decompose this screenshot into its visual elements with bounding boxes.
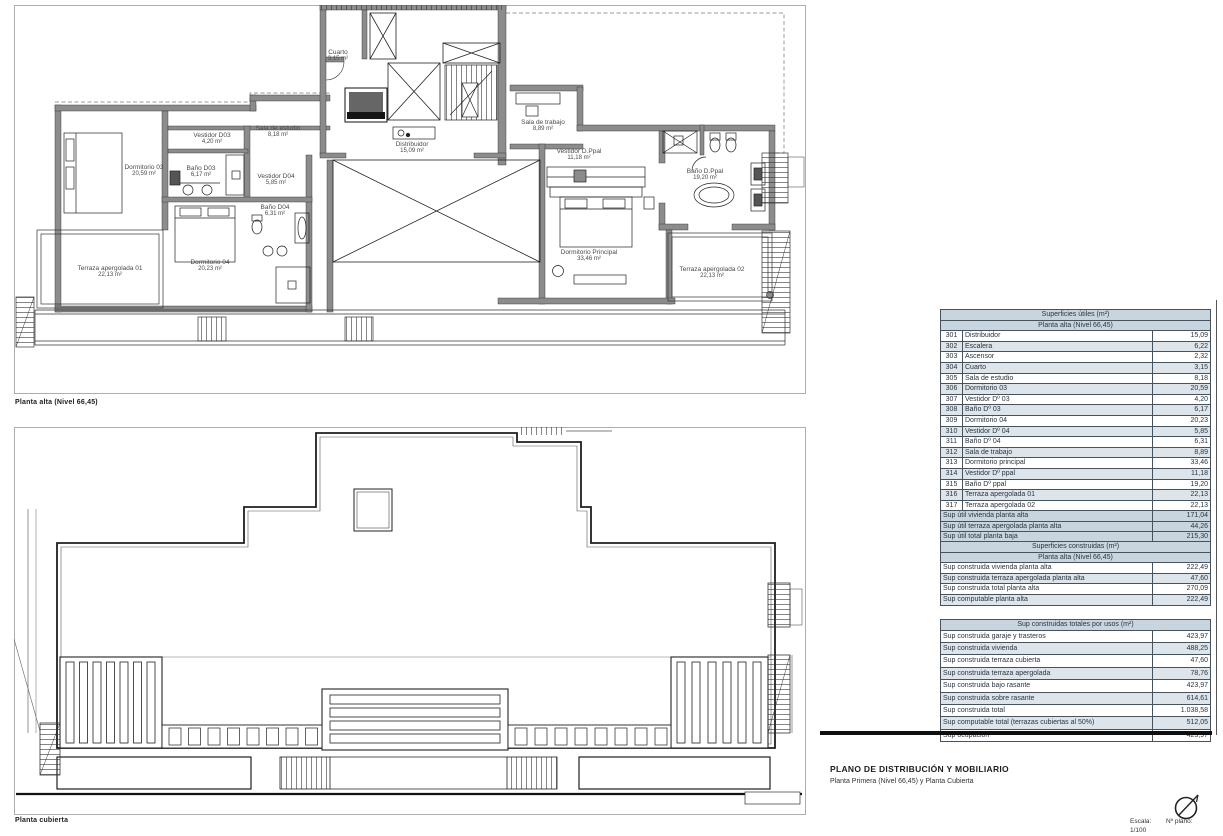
table-row: 312Sala de trabajo8,89	[941, 447, 1211, 458]
table-row: 306Dormitorio 0320,59	[941, 384, 1211, 395]
useful-areas-table: Superficies útiles (m²) Planta alta (Niv…	[940, 309, 1211, 543]
tower-top-hatch	[320, 5, 506, 10]
table-row: Sup construida terraza cubierta47,60	[941, 655, 1211, 667]
total-areas-rows: Sup construida garaje y trasteros423,97S…	[941, 630, 1211, 742]
skylight	[354, 489, 392, 531]
table-row: Sup construida total planta alta270,09	[941, 584, 1211, 595]
total-areas-table: Sup construidas totales por usos (m²) Su…	[940, 619, 1211, 742]
table-row: 313Dormitorio principal33,46	[941, 458, 1211, 469]
drawing-sheet: { "document": { "title": "PLANO DE DISTR…	[0, 0, 1223, 836]
bed-dormitorio-03	[64, 133, 122, 213]
table-row: 302Escalera6,22	[941, 341, 1211, 352]
master-closet	[547, 167, 645, 187]
table-row: Sup construida vivienda planta alta222,4…	[941, 563, 1211, 574]
table-row: Sup computable planta alta222,49	[941, 594, 1211, 605]
master-bath-fixtures	[663, 131, 765, 211]
built-areas-rows: Sup construida vivienda planta alta222,4…	[941, 563, 1211, 605]
table-row: 316Terraza apergolada 0122,13	[941, 490, 1211, 501]
table-subtitle-row: Planta alta (Nivel 66,45)	[941, 320, 1211, 331]
sheet-right-margin-line	[1216, 300, 1217, 735]
table-title-row: Superficies útiles (m²)	[941, 310, 1211, 321]
site-boundary-lines	[14, 509, 40, 733]
table-row: Sup útil vivienda planta alta171,04	[941, 511, 1211, 522]
slat-strip-left	[162, 725, 322, 748]
pergola-left	[60, 657, 162, 748]
table-title-row: Superficies construidas (m²)	[941, 542, 1211, 553]
upper-plan-caption: Planta alta (Nivel 66,45)	[15, 399, 98, 406]
table-row: 317Terraza apergolada 0222,13	[941, 500, 1211, 511]
slat-strip-right	[508, 725, 671, 748]
table-row: Sup construida bajo rasante423,97	[941, 680, 1211, 692]
table-row: 311Baño Dº 046,31	[941, 437, 1211, 448]
tower-top-hatch	[517, 427, 566, 435]
table-title: Sup construidas totales por usos (m²)	[941, 620, 1211, 631]
table-row: 309Dormitorio 0420,23	[941, 415, 1211, 426]
table-row: 303Ascensor2,32	[941, 352, 1211, 363]
table-title-row: Sup construidas totales por usos (m²)	[941, 620, 1211, 631]
table-row: 308Baño Dº 036,17	[941, 405, 1211, 416]
titleblock-divider	[820, 731, 1212, 735]
table-row: 307Vestidor Dº 034,20	[941, 394, 1211, 405]
staircase	[445, 65, 497, 120]
north-arrow-icon	[1172, 791, 1202, 821]
cuarto-door-arc	[326, 62, 344, 80]
table-title: Superficies útiles (m²)	[941, 310, 1211, 321]
table-row: 315Baño Dº ppal19,20	[941, 479, 1211, 490]
upper-floor-plan-drawing	[14, 5, 806, 394]
bed-dormitorio-04	[175, 206, 235, 262]
table-row: Sup construida sobre rasante614,61	[941, 692, 1211, 704]
table-subtitle-row: Planta alta (Nivel 66,45)	[941, 552, 1211, 563]
exterior-stairs	[16, 153, 804, 347]
table-row: Sup computable total (terrazas cubiertas…	[941, 717, 1211, 729]
table-row: Sup construida total1.038,58	[941, 705, 1211, 717]
useful-areas-summary: Sup útil vivienda planta alta171,04Sup ú…	[941, 511, 1211, 543]
roof-plan-drawing	[14, 427, 806, 815]
scale-label: Escala:	[1130, 818, 1151, 825]
table-row: Sup construida terraza apergolada planta…	[941, 573, 1211, 584]
table-title: Superficies construidas (m²)	[941, 542, 1211, 553]
bed-principal	[550, 187, 654, 284]
media-unit	[345, 88, 387, 122]
terrace-railings	[35, 230, 785, 345]
table-row: 305Sala de estudio8,18	[941, 373, 1211, 384]
sheet-subtitle: Planta Primera (Nivel 66,45) y Planta Cu…	[830, 778, 974, 785]
scale-value: 1/100	[1130, 827, 1146, 834]
table-row: 310Vestidor Dº 045,85	[941, 426, 1211, 437]
table-row: Sup útil terraza apergolada planta alta4…	[941, 521, 1211, 532]
bottom-right-step	[745, 792, 800, 804]
built-areas-table: Superficies construidas (m²) Planta alta…	[940, 541, 1211, 606]
lower-terrace-band	[57, 757, 770, 789]
bath-03-fixtures	[170, 155, 244, 195]
useful-areas-rows: 301Distribuidor15,09302Escalera6,22303As…	[941, 331, 1211, 511]
work-desk	[516, 93, 560, 116]
sheet-title: PLANO DE DISTRIBUCIÓN Y MOBILIARIO	[830, 764, 1009, 774]
table-row: Sup construida vivienda488,25	[941, 643, 1211, 655]
void-cross	[333, 160, 540, 262]
pergola-right	[671, 657, 768, 748]
table-row: 314Vestidor Dº ppal11,18	[941, 468, 1211, 479]
hall-desk	[393, 127, 435, 139]
table-row: 301Distribuidor15,09	[941, 331, 1211, 342]
table-subtitle: Planta alta (Nivel 66,45)	[941, 320, 1211, 331]
center-louvers	[322, 689, 508, 750]
table-subtitle: Planta alta (Nivel 66,45)	[941, 552, 1211, 563]
bath-04-fixtures	[252, 213, 310, 303]
plan-number-label: Nº plano:	[1166, 818, 1193, 825]
plan-viewport-border	[15, 6, 806, 394]
table-row: Sup construida terraza apergolada78,76	[941, 667, 1211, 679]
roof-plan-caption: Planta cubierta	[15, 817, 68, 824]
table-row: Sup construida garaje y trasteros423,97	[941, 630, 1211, 642]
table-row: 304Cuarto3,15	[941, 362, 1211, 373]
